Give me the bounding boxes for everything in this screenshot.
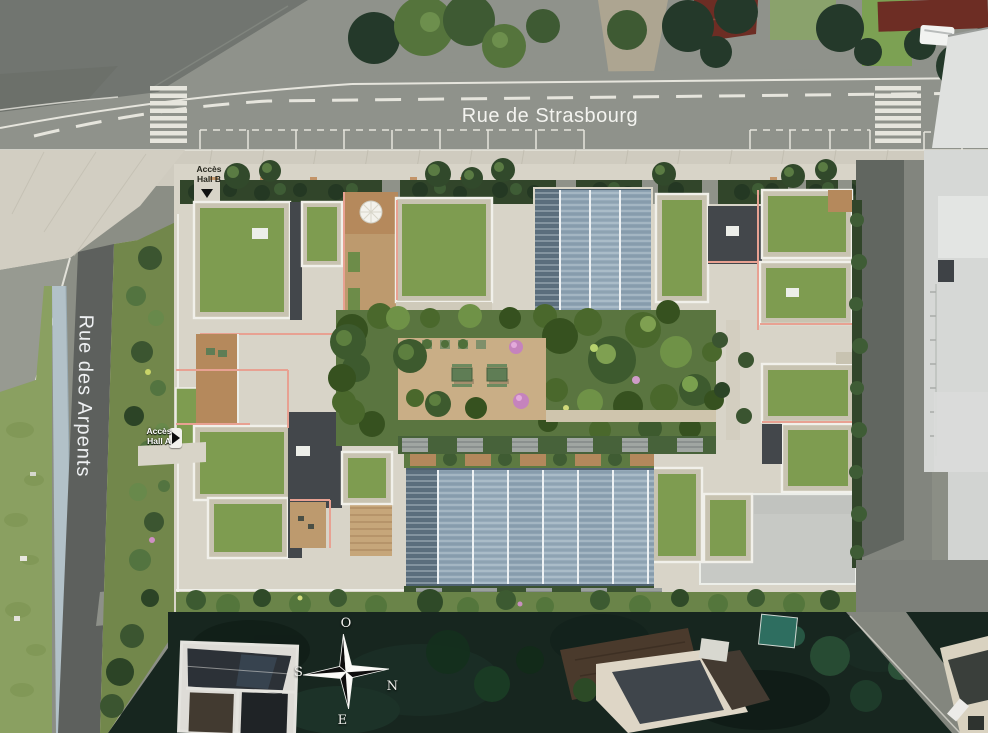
residence-block (138, 164, 858, 619)
compass-south-label: S (294, 665, 303, 680)
aerial-rendering (0, 0, 988, 733)
access-hall-a-arrow-icon (172, 432, 180, 444)
central-courtyard (328, 300, 754, 454)
access-hall-b-line1: Accès (188, 164, 230, 174)
south-zone (108, 612, 988, 733)
courtyard-path (546, 410, 716, 422)
compass-star-icon (294, 616, 398, 728)
neighbor-building-southwest (179, 642, 298, 733)
glass-roof-south (404, 452, 662, 602)
access-hall-b-label: Accès Hall B (188, 164, 230, 184)
compass-west-label: O (341, 616, 352, 631)
access-hall-b-line2: Hall B (188, 174, 230, 184)
glass-roof-north (534, 188, 652, 312)
pool (759, 614, 798, 648)
compass-north-label: N (387, 679, 398, 694)
access-hall-b-arrow-icon (201, 189, 213, 198)
compass-rose: O S N E (294, 616, 398, 728)
compass-east-label: E (338, 713, 348, 728)
site-plan: Rue de Strasbourg Rue des Arpents Accès … (0, 0, 988, 733)
